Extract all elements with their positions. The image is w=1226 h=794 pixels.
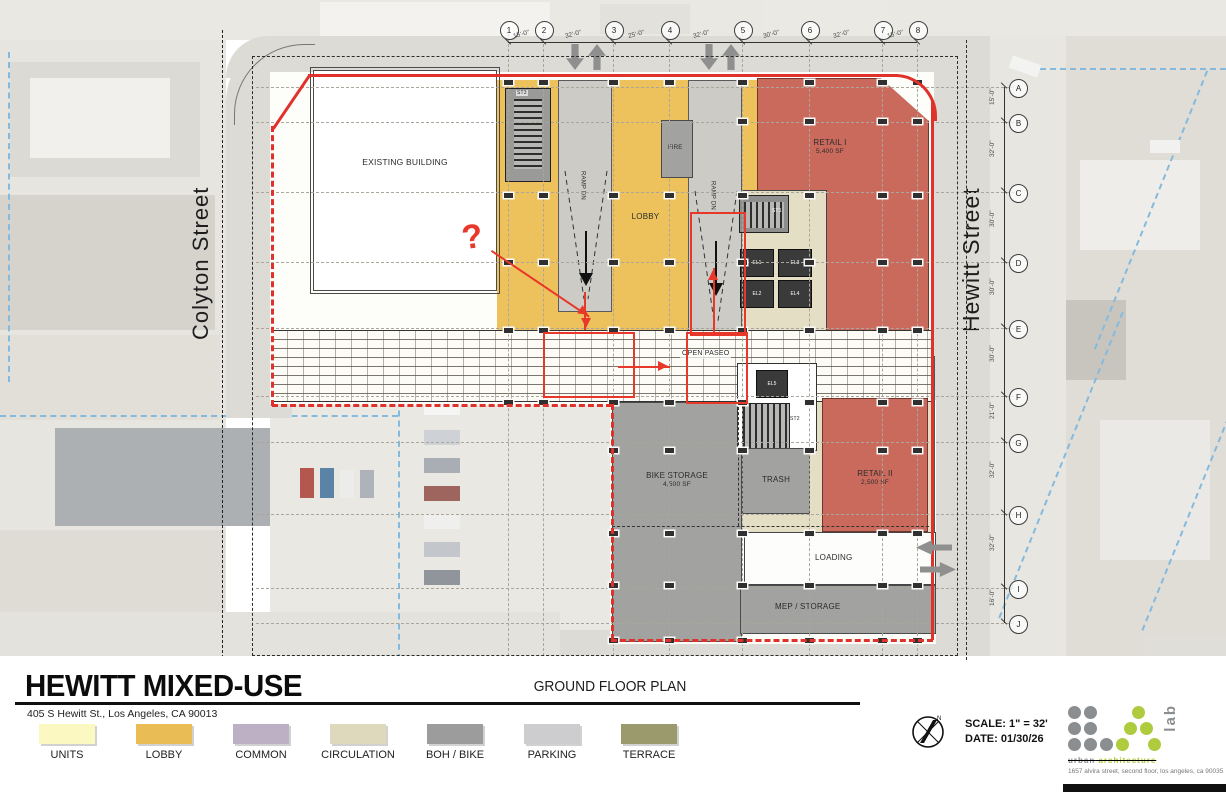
legend-swatch [330,724,386,744]
floor-plan-sheet: Colyton Street Hewitt Street RAMP DN RAM… [0,0,1226,794]
project-title: HEWITT MIXED-USE [25,668,302,704]
property-line-top [308,74,898,77]
legend-item: TERRACE [602,724,696,761]
red-highlight-rect [543,332,635,398]
legend-swatch [427,724,483,744]
legend-item: CIRCULATION [311,724,405,761]
legend-label: TERRACE [602,749,696,761]
firm-address: 1657 alvira street, second floor, los an… [1068,768,1223,775]
svg-text:N: N [937,716,941,722]
legend-label: LOBBY [117,749,211,761]
firm-name: urban architecture [1068,756,1156,765]
title-block: HEWITT MIXED-USE 405 S Hewitt St., Los A… [0,656,1226,794]
legend-swatch [136,724,192,744]
lobby-label: LOBBY [618,212,673,222]
legend-item: COMMON [214,724,308,761]
date-label: DATE: 01/30/26 [965,733,1044,745]
dimension-line-right [1004,87,1005,623]
bottom-bar [1063,784,1226,792]
property-line-bottom [611,639,933,642]
legend-swatch [233,724,289,744]
property-line-left-lower [611,404,614,640]
firm-logo: lab urban architecture 1657 alvira stree… [1068,704,1226,792]
right-dashed-line [966,40,967,660]
legend-label: PARKING [505,749,599,761]
legend-label: CIRCULATION [311,749,405,761]
sheet-title: GROUND FLOOR PLAN [463,678,757,695]
street-name-left: Colyton Street [188,160,214,340]
north-arrow-icon: N [910,714,948,752]
property-line-right [931,100,934,640]
retail1-label: RETAIL I 5,400 SF [795,138,865,156]
legend-label: UNITS [20,749,114,761]
red-highlight-rect [690,212,746,336]
legend-swatch [524,724,580,744]
project-address: 405 S Hewitt St., Los Angeles, CA 90013 [27,708,217,720]
red-highlight-rect [686,332,748,404]
dimension-line-top [508,42,917,43]
street-centerline-left [222,30,223,658]
scale-label: SCALE: 1" = 32' [965,718,1048,730]
logo-lab-text: lab [1162,704,1179,732]
legend-item: BOH / BIKE [408,724,502,761]
legend-item: PARKING [505,724,599,761]
street-name-right: Hewitt Street [958,172,985,332]
red-arrow-annotation [584,292,586,330]
legend-item: LOBBY [117,724,211,761]
property-line-left [271,126,274,406]
legend-swatch [621,724,677,744]
title-rule [15,702,860,705]
legend-item: UNITS [20,724,114,761]
legend-label: COMMON [214,749,308,761]
legend-label: BOH / BIKE [408,749,502,761]
legend-swatch [39,724,95,744]
property-line-mid [272,404,612,407]
